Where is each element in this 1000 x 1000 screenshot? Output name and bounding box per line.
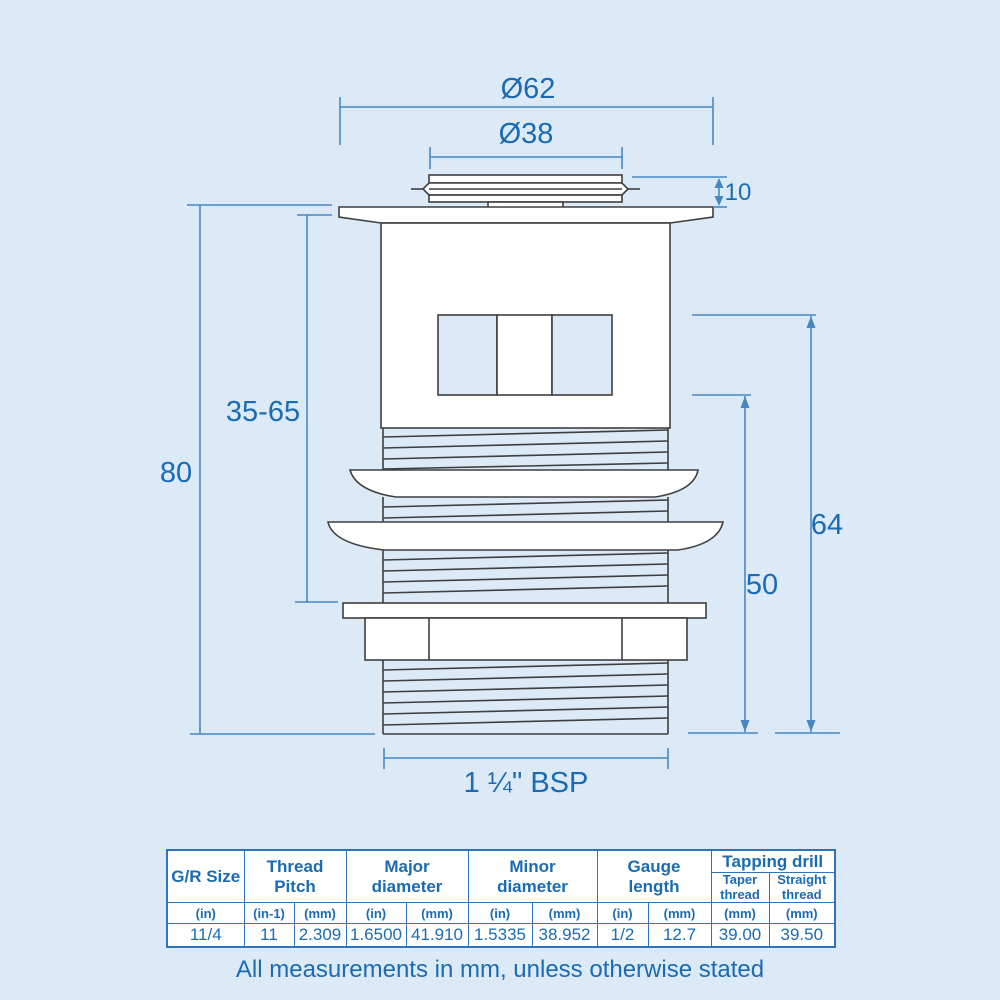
value-cell: 1.5335 (468, 924, 532, 948)
dim-cap-height: 10 (632, 177, 751, 207)
thread-section-upper (383, 428, 668, 470)
washer-upper (350, 470, 698, 497)
value-cell: 1/2 (597, 924, 648, 948)
col-header-tapping-drill: Tapping drill (711, 850, 835, 873)
col-header-major-diameter: Major diameter (346, 850, 468, 903)
dim-inner-diameter-label: Ø38 (499, 118, 554, 150)
dim-outer-diameter-label: Ø62 (501, 73, 556, 105)
col-header-thread-pitch: Thread Pitch (244, 850, 346, 903)
unit-cell: (in) (468, 903, 532, 924)
dim-thread-spec: 1 ¼" BSP (384, 748, 668, 799)
col-header-straight-thread: Straight thread (769, 873, 835, 903)
unit-cell: (mm) (406, 903, 468, 924)
basin-waste-technical-drawing: Ø62 Ø38 10 80 35-65 (0, 0, 1000, 845)
value-cell: 39.00 (711, 924, 769, 948)
plug-cap (411, 175, 640, 208)
col-header-taper-thread: Taper thread (711, 873, 769, 903)
thread-section-lower (383, 550, 668, 603)
col-header-minor-diameter: Minor diameter (468, 850, 597, 903)
unit-cell: (mm) (294, 903, 346, 924)
col-header-gr-size: G/R Size (167, 850, 244, 903)
value-cell: 11/4 (167, 924, 244, 948)
value-cell: 1.6500 (346, 924, 406, 948)
dim-overall-length: 80 (160, 205, 375, 734)
unit-cell: (in) (346, 903, 406, 924)
value-cell: 2.309 (294, 924, 346, 948)
measurements-note: All measurements in mm, unless otherwise… (0, 956, 1000, 984)
dim-thread-spec-label: 1 ¼" BSP (464, 767, 589, 799)
unit-cell: (mm) (769, 903, 835, 924)
page: Ø62 Ø38 10 80 35-65 (0, 0, 1000, 1000)
unit-cell: (in) (167, 903, 244, 924)
washer-lower (328, 522, 723, 550)
thread-section-middle (383, 497, 668, 522)
thread-spec-table: G/R Size Thread Pitch Major diameter Min… (166, 849, 836, 948)
col-header-gauge-length: Gauge length (597, 850, 711, 903)
unit-cell: (mm) (532, 903, 597, 924)
backnut-washer-plate (343, 603, 706, 618)
value-cell: 12.7 (648, 924, 711, 948)
overflow-slot (438, 315, 612, 395)
dim-right-inner: 50 (688, 395, 778, 733)
dim-adjustable-range: 35-65 (226, 215, 338, 602)
unit-cell: (in) (597, 903, 648, 924)
dim-inner-diameter: Ø38 (430, 118, 622, 169)
flange (339, 207, 713, 223)
thread-tail (383, 660, 668, 734)
value-cell: 11 (244, 924, 294, 948)
dim-cap-height-label: 10 (725, 179, 752, 206)
value-cell: 38.952 (532, 924, 597, 948)
hex-backnut (365, 618, 687, 660)
value-cell: 39.50 (769, 924, 835, 948)
unit-cell: (mm) (711, 903, 769, 924)
dim-right-inner-label: 50 (746, 569, 778, 601)
unit-cell: (mm) (648, 903, 711, 924)
unit-cell: (in-1) (244, 903, 294, 924)
dim-overall-length-label: 80 (160, 457, 192, 489)
dim-adjustable-range-label: 35-65 (226, 396, 300, 428)
dim-right-outer-label: 64 (811, 509, 843, 541)
value-cell: 41.910 (406, 924, 468, 948)
